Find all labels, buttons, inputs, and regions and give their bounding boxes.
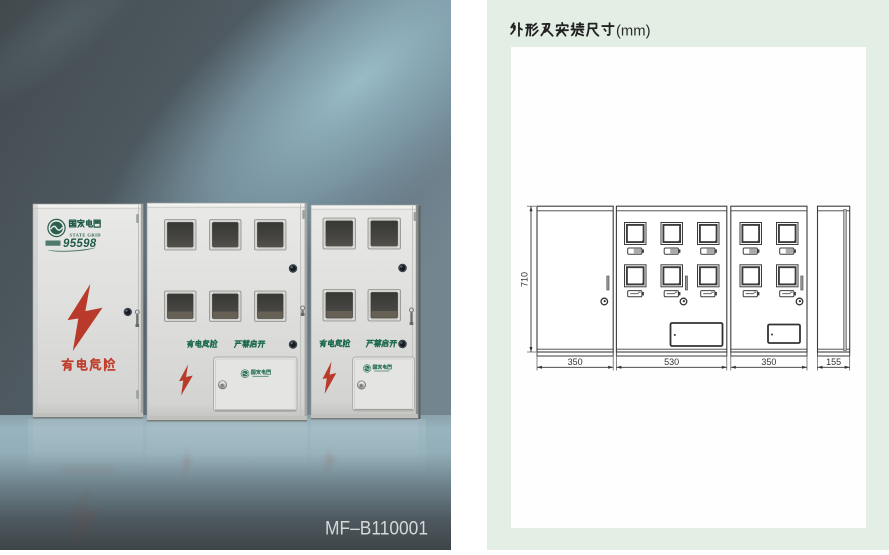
- svg-text:710: 710: [520, 272, 530, 287]
- svg-text:350: 350: [568, 357, 583, 367]
- svg-text:MF–B110001: MF–B110001: [325, 518, 428, 540]
- svg-text:530: 530: [664, 357, 679, 367]
- svg-text:155: 155: [826, 357, 841, 367]
- svg-text:(mm): (mm): [616, 24, 651, 40]
- svg-text:95598: 95598: [63, 238, 97, 250]
- svg-text:STATE GRID: STATE GRID: [70, 233, 102, 238]
- svg-text:350: 350: [761, 357, 776, 367]
